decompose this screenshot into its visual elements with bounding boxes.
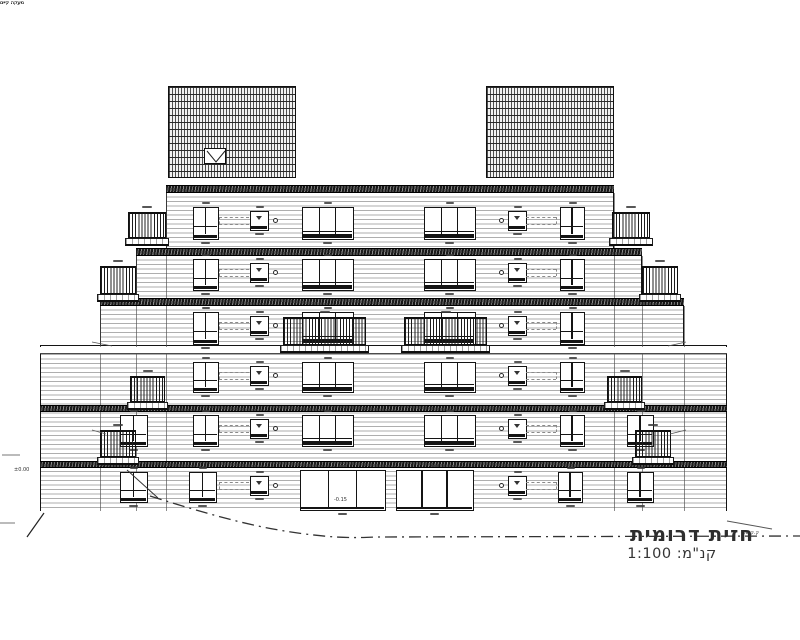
window-w3 — [302, 259, 354, 291]
window-part — [509, 434, 525, 437]
balcony-slab — [604, 402, 645, 410]
balcony-slab — [97, 457, 139, 465]
window-part — [514, 481, 520, 485]
tiny-level-mark — [323, 449, 332, 451]
balcony-railing — [100, 266, 136, 294]
window-part — [425, 387, 474, 391]
railing-note: מעקה קיים — [0, 0, 24, 6]
window-part — [303, 285, 352, 289]
window-w3 — [424, 259, 476, 291]
tiny-level-mark — [323, 293, 332, 295]
balcony-slab — [609, 238, 653, 246]
dashed-leader — [219, 217, 220, 224]
balcony-railing — [100, 430, 136, 457]
dashed-leader — [219, 269, 220, 276]
window-handle-circle — [273, 270, 278, 275]
balcony-slab — [639, 294, 681, 302]
dashed-leader — [526, 276, 556, 277]
floor-slab-band — [100, 298, 684, 306]
window-w3 — [302, 207, 354, 240]
window-part — [205, 416, 206, 441]
dashed-leader — [219, 372, 249, 373]
tiny-level-mark — [655, 260, 665, 262]
tiny-level-mark — [445, 449, 454, 451]
tiny-level-mark — [324, 357, 332, 359]
margin-tick-lines — [0, 455, 20, 523]
vent-flap-icon — [205, 149, 227, 165]
window-part — [205, 208, 206, 234]
balcony-railing — [130, 376, 165, 402]
balcony-railing — [128, 212, 166, 238]
window-part — [514, 321, 520, 325]
tiny-level-mark — [445, 395, 454, 397]
tiny-level-mark — [620, 370, 630, 372]
window-part — [303, 441, 352, 445]
window-part — [425, 384, 474, 385]
window-sq — [250, 316, 269, 336]
window-part — [256, 481, 262, 485]
window-sq — [508, 419, 527, 439]
tiny-level-mark — [568, 242, 577, 244]
window-part — [194, 278, 217, 279]
dashed-leader — [556, 372, 557, 379]
window-part — [425, 438, 474, 439]
window-part — [205, 363, 206, 387]
dashed-leader — [219, 269, 249, 270]
tiny-level-mark — [255, 388, 264, 390]
window-part — [559, 490, 581, 491]
window-part — [303, 384, 352, 385]
window-sq — [250, 263, 269, 283]
tiny-level-mark — [143, 370, 153, 372]
window-part — [121, 498, 146, 501]
window-part — [121, 490, 146, 491]
window-w2 — [193, 362, 219, 393]
balcony-railing — [283, 317, 366, 345]
tiny-level-mark — [446, 357, 454, 359]
window-part — [251, 434, 267, 437]
window-part — [397, 507, 472, 509]
window-part — [514, 268, 520, 272]
window-part — [194, 340, 217, 343]
window-part — [303, 231, 352, 232]
roof-vent — [204, 148, 226, 164]
tiny-level-mark — [255, 441, 264, 443]
tiny-level-mark — [201, 242, 210, 244]
balcony-railing — [404, 317, 487, 345]
tiny-level-mark — [568, 347, 577, 349]
tiny-level-mark — [569, 357, 577, 359]
window-part — [509, 331, 525, 334]
window-part — [194, 442, 217, 445]
window-part — [194, 380, 217, 381]
window-sq — [508, 476, 527, 496]
tiny-level-mark — [198, 505, 207, 507]
window-part — [571, 313, 572, 339]
window-part — [194, 235, 217, 238]
window-part — [425, 282, 474, 283]
tiny-level-mark — [324, 307, 332, 309]
window-part — [561, 380, 583, 381]
window-part — [571, 260, 572, 285]
tiny-level-mark — [514, 471, 522, 473]
tiny-level-mark — [202, 410, 210, 412]
tiny-level-mark — [569, 410, 577, 412]
window-part — [425, 285, 474, 289]
window-part — [256, 424, 262, 428]
window-handle-circle — [499, 218, 504, 223]
window-part — [639, 473, 640, 497]
dashed-leader — [219, 482, 220, 489]
tiny-level-mark — [323, 395, 332, 397]
tiny-level-mark — [256, 258, 264, 260]
window-w2 — [560, 415, 585, 447]
tiny-level-mark — [513, 285, 522, 287]
balcony-railing — [612, 212, 650, 238]
window-part — [303, 282, 352, 283]
window-part — [251, 491, 267, 494]
tiny-level-mark — [568, 293, 577, 295]
dashed-leader — [556, 425, 557, 432]
window-part — [190, 490, 215, 491]
balcony-railing — [607, 376, 642, 402]
tiny-level-mark — [142, 206, 152, 208]
tiny-level-mark — [320, 311, 330, 313]
window-part — [194, 331, 217, 332]
window-handle-circle — [273, 373, 278, 378]
tiny-level-mark — [445, 242, 454, 244]
window-part — [514, 216, 520, 220]
window-part — [205, 260, 206, 285]
left-break-line — [27, 513, 44, 537]
window-part — [561, 226, 583, 227]
tiny-level-mark — [324, 254, 332, 256]
dashed-leader — [219, 322, 220, 329]
drawing-scale: קנ"מ: 1:100 — [592, 546, 752, 562]
tiny-level-mark — [626, 206, 636, 208]
floor-slab-band — [136, 248, 642, 256]
tiny-level-mark — [201, 347, 210, 349]
tiny-level-mark — [130, 467, 138, 469]
window-handle-circle — [273, 483, 278, 488]
window-part — [194, 226, 217, 227]
window-part — [425, 441, 474, 445]
window-part — [251, 226, 267, 229]
balcony-slab — [127, 402, 168, 410]
tiny-level-mark — [113, 260, 123, 262]
dashed-leader — [526, 489, 556, 490]
window-part — [561, 434, 583, 435]
window-part — [356, 471, 357, 509]
dashed-leader — [526, 217, 556, 218]
tiny-level-mark — [431, 465, 439, 467]
window-w2 — [193, 415, 219, 447]
dashed-leader — [526, 269, 556, 270]
tiny-level-mark — [255, 233, 264, 235]
window-part — [303, 234, 352, 238]
tiny-level-mark — [430, 513, 439, 515]
window-handle-circle — [273, 218, 278, 223]
window-w2 — [193, 259, 219, 291]
window-w2 — [627, 472, 654, 503]
window-part — [190, 498, 215, 501]
window-sq — [508, 211, 527, 231]
dashed-leader — [219, 276, 249, 277]
dashed-leader — [219, 329, 249, 330]
floor-slab-band — [40, 347, 727, 354]
tiny-level-mark — [338, 513, 347, 515]
balcony-slab — [401, 345, 490, 353]
tiny-level-mark — [569, 307, 577, 309]
dashed-leader — [526, 329, 556, 330]
tiny-level-mark — [569, 254, 577, 256]
tiny-level-mark — [513, 388, 522, 390]
tiny-level-mark — [339, 465, 347, 467]
tiny-level-mark — [513, 441, 522, 443]
window-w3 — [424, 207, 476, 240]
natural-ground-line-label: ק.ק.ט. — [744, 530, 759, 536]
floor-level-label: -0.15 — [334, 497, 347, 503]
window-part — [561, 331, 583, 332]
window-part — [256, 216, 262, 220]
window-sq — [250, 419, 269, 439]
window-part — [425, 231, 474, 232]
window-w3 — [302, 415, 354, 447]
tiny-level-mark — [513, 338, 522, 340]
window-w3 — [424, 362, 476, 393]
window-part — [303, 438, 352, 439]
window-handle-circle — [499, 323, 504, 328]
window-part — [256, 268, 262, 272]
tiny-level-mark — [446, 202, 454, 204]
tiny-level-mark — [637, 467, 645, 469]
elevation-drawing: חזית דרומית קנ"מ: 1:100 ק.ק.ט. ±0.00 -0.… — [0, 0, 800, 640]
window-part — [514, 371, 520, 375]
dashed-leader — [526, 482, 556, 483]
window-part — [251, 278, 267, 281]
window-part — [133, 473, 134, 497]
window-part — [251, 381, 267, 384]
window-part — [301, 507, 384, 509]
tiny-level-mark — [255, 498, 264, 500]
tiny-level-mark — [256, 471, 264, 473]
dashed-leader — [219, 372, 220, 379]
roof-hatched-volume — [486, 86, 614, 178]
tiny-level-mark — [648, 424, 658, 426]
tiny-level-mark — [513, 498, 522, 500]
window-part — [256, 371, 262, 375]
tiny-level-mark — [256, 206, 264, 208]
window-part — [561, 442, 583, 445]
tiny-level-mark — [202, 357, 210, 359]
window-part — [628, 490, 652, 491]
facade-wall — [100, 306, 684, 345]
window-w2 — [120, 472, 148, 503]
dashed-leader — [219, 322, 249, 323]
level-zero-label: ±0.00 — [14, 467, 29, 473]
window-part — [561, 340, 583, 343]
tiny-level-mark — [113, 424, 123, 426]
tiny-level-mark — [446, 254, 454, 256]
tiny-level-mark — [256, 361, 264, 363]
dashed-leader — [219, 489, 249, 490]
window-w3 — [424, 415, 476, 447]
dashed-leader — [556, 217, 557, 224]
window-part — [571, 363, 572, 387]
window-part — [561, 286, 583, 289]
tiny-level-mark — [255, 338, 264, 340]
window-sq — [508, 316, 527, 336]
tiny-level-mark — [129, 505, 138, 507]
window-w2 — [189, 472, 217, 503]
window-sq — [508, 366, 527, 386]
tiny-level-mark — [566, 505, 575, 507]
dashed-leader — [219, 425, 249, 426]
tiny-level-mark — [255, 285, 264, 287]
tiny-level-mark — [256, 311, 264, 313]
dashed-leader — [219, 425, 220, 432]
window-part — [561, 388, 583, 391]
tiny-level-mark — [568, 395, 577, 397]
window-sq — [250, 366, 269, 386]
window-handle-circle — [499, 373, 504, 378]
dashed-leader — [526, 379, 556, 380]
window-w2 — [560, 312, 585, 345]
tiny-level-mark — [513, 233, 522, 235]
window-part — [628, 498, 652, 501]
window-handle-circle — [273, 323, 278, 328]
tiny-level-mark — [445, 293, 454, 295]
window-part — [446, 471, 447, 509]
window-handle-circle — [499, 483, 504, 488]
floor-slab-band — [40, 461, 727, 468]
balcony-slab — [97, 294, 139, 302]
tiny-level-mark — [637, 410, 645, 412]
balcony-slab — [632, 457, 674, 465]
window-part — [559, 498, 581, 501]
dashed-leader — [556, 269, 557, 276]
window-w2 — [193, 207, 219, 240]
window-part — [561, 278, 583, 279]
window-door — [300, 470, 386, 511]
window-sq — [508, 263, 527, 283]
dashed-leader — [526, 372, 556, 373]
tiny-level-mark — [323, 242, 332, 244]
window-part — [569, 473, 570, 497]
tiny-level-mark — [514, 414, 522, 416]
tiny-level-mark — [130, 410, 138, 412]
dashed-leader — [526, 322, 556, 323]
window-part — [571, 208, 572, 234]
tiny-level-mark — [199, 467, 207, 469]
tiny-level-mark — [568, 449, 577, 451]
tiny-level-mark — [446, 307, 454, 309]
window-w2 — [193, 312, 219, 345]
dashed-leader — [219, 432, 249, 433]
window-w2 — [558, 472, 583, 503]
dashed-leader — [219, 482, 249, 483]
window-part — [202, 473, 203, 497]
window-part — [514, 424, 520, 428]
window-sq — [250, 211, 269, 231]
tiny-level-mark — [201, 395, 210, 397]
tiny-level-mark — [202, 202, 210, 204]
dashed-leader — [219, 224, 249, 225]
facade-wall — [166, 193, 614, 248]
window-part — [509, 491, 525, 494]
window-part — [205, 313, 206, 339]
tiny-level-mark — [324, 202, 332, 204]
tiny-level-mark — [514, 361, 522, 363]
window-handle-circle — [499, 270, 504, 275]
window-part — [194, 434, 217, 435]
tiny-level-mark — [446, 410, 454, 412]
window-part — [328, 471, 329, 509]
window-part — [256, 321, 262, 325]
tiny-level-mark — [201, 293, 210, 295]
window-part — [303, 387, 352, 391]
window-part — [561, 235, 583, 238]
tiny-level-mark — [324, 410, 332, 412]
balcony-railing — [642, 266, 678, 294]
window-w2 — [560, 259, 585, 291]
tiny-level-mark — [514, 311, 522, 313]
dashed-leader — [219, 217, 249, 218]
dashed-leader — [219, 379, 249, 380]
window-part — [509, 226, 525, 229]
tiny-level-mark — [256, 414, 264, 416]
tiny-level-mark — [636, 505, 645, 507]
balcony-slab — [280, 345, 369, 353]
window-part — [425, 234, 474, 238]
tiny-level-mark — [514, 206, 522, 208]
window-part — [194, 388, 217, 391]
dashed-leader — [526, 425, 556, 426]
floor-slab-band — [166, 185, 614, 193]
dashed-leader — [526, 432, 556, 433]
window-part — [509, 381, 525, 384]
window-w2 — [560, 362, 585, 393]
window-part — [509, 278, 525, 281]
tiny-level-mark — [567, 467, 575, 469]
window-handle-circle — [499, 426, 504, 431]
roof-hatched-volume — [168, 86, 296, 178]
window-part — [571, 416, 572, 441]
tiny-level-mark — [441, 311, 451, 313]
window-w3 — [302, 362, 354, 393]
window-w2 — [560, 207, 585, 240]
tiny-level-mark — [569, 202, 577, 204]
window-part — [194, 286, 217, 289]
dashed-leader — [556, 482, 557, 489]
balcony-railing — [635, 430, 671, 457]
tiny-level-mark — [202, 307, 210, 309]
dashed-leader — [556, 322, 557, 329]
tiny-level-mark — [202, 254, 210, 256]
tiny-level-mark — [514, 258, 522, 260]
dashed-leader — [526, 224, 556, 225]
window-sq — [250, 476, 269, 496]
balcony-slab — [125, 238, 169, 246]
window-part — [421, 471, 422, 509]
window-handle-circle — [273, 426, 278, 431]
window-part — [251, 331, 267, 334]
tiny-level-mark — [201, 449, 210, 451]
window-door — [396, 470, 474, 511]
